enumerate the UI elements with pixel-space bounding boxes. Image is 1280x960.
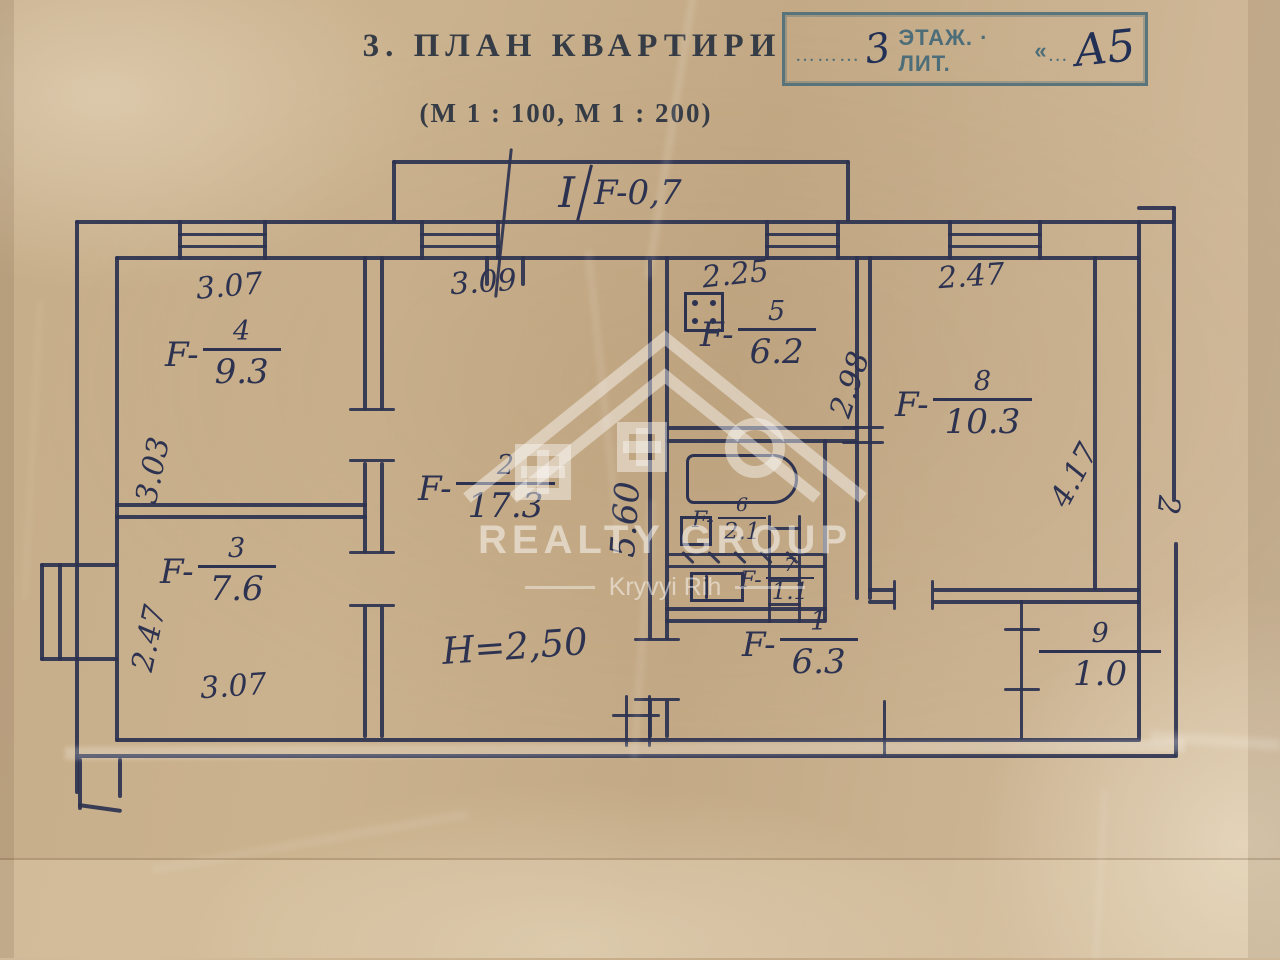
wall-segment: [933, 588, 1140, 592]
window-kitchen: [765, 245, 840, 248]
wall-segment: [1137, 206, 1176, 210]
dimension-kitchen-top: 2.25: [701, 257, 771, 294]
window-room2: [420, 220, 424, 260]
entry-door-jamb: [883, 700, 886, 756]
window-room8: [948, 233, 1042, 236]
wall-segment: [665, 700, 669, 738]
door-jamb: [893, 580, 896, 610]
window-room4: [178, 220, 182, 260]
room-3-label: F- 3 7.6: [160, 535, 276, 606]
window-room3: [40, 657, 118, 661]
room-2-area: 17.3: [456, 482, 556, 523]
room-1-area: 6.3: [780, 638, 858, 679]
door-jamb: [625, 695, 628, 747]
wall-segment: [846, 160, 850, 222]
room-2-prefix: F-: [418, 452, 452, 506]
vent-shaft: [768, 527, 801, 530]
window-room3: [40, 563, 118, 567]
dimension-room2-top: 3.09: [449, 266, 518, 301]
room-4-label: F- 4 9.3: [165, 318, 281, 389]
wall-segment: [665, 426, 857, 430]
wall-segment: [380, 462, 384, 553]
dimension-room3-bottom: 3.07: [199, 670, 268, 705]
toilet-icon: [690, 572, 744, 602]
stamp-label: ЭТАЖ. · ЛИТ.: [898, 25, 1028, 77]
room-8-number: 8: [974, 368, 991, 395]
room-8-label: F- 8 10.3: [895, 368, 1032, 439]
room-7-label: F- 7 1.1: [740, 556, 814, 604]
door-jamb: [648, 695, 651, 747]
wall-segment: [78, 803, 122, 813]
wall-segment: [115, 515, 367, 519]
stamp-dotted-line-2: …: [1048, 45, 1070, 65]
room-8-area: 10.3: [933, 398, 1033, 439]
window-room2: [420, 233, 500, 236]
room-9-label: 9 1.0: [1035, 620, 1161, 691]
stamp-box: ……… 3 ЭТАЖ. · ЛИТ. « … А5: [782, 12, 1148, 86]
room-2-number: 2: [497, 452, 514, 479]
window-room8: [948, 245, 1042, 248]
door-jamb: [349, 459, 395, 462]
door-jamb: [349, 551, 395, 554]
room-8-prefix: F-: [895, 368, 929, 422]
wall-segment: [75, 754, 1176, 758]
room-4-area: 9.3: [203, 348, 281, 389]
room-7-prefix: F-: [740, 556, 762, 592]
room-6-label: F- 6 2.1: [692, 496, 766, 544]
stamp-quote: «: [1034, 38, 1047, 64]
wall-segment: [115, 738, 1141, 742]
page-title: 3. ПЛАН КВАРТИРИ: [352, 28, 792, 65]
room-9-area: 1.0: [1039, 650, 1161, 691]
balcony-label: I F-0,7: [440, 164, 800, 222]
room-5-prefix: F-: [700, 298, 734, 352]
window-kitchen: [765, 233, 840, 236]
wall-segment: [823, 439, 827, 621]
wall-segment: [933, 600, 1140, 604]
window-room3: [40, 563, 44, 661]
dimension-room2-right: 5.60: [606, 480, 645, 558]
edge-mark: 2: [1152, 494, 1184, 516]
room-1-number: 1: [810, 608, 827, 635]
room-4-prefix: F-: [165, 318, 199, 372]
wall-segment: [1172, 206, 1176, 502]
wall-segment: [648, 256, 652, 640]
window-room2: [420, 245, 500, 248]
door-jamb: [349, 408, 395, 411]
wall-segment: [380, 606, 384, 738]
wall-segment: [380, 256, 384, 410]
wall-segment: [868, 588, 895, 592]
balcony-door-jamb: [521, 256, 525, 286]
dimension-room4-left: 3.03: [132, 435, 175, 507]
room-7-number: 7: [784, 556, 796, 575]
dimension-room3-left: 2.47: [128, 603, 171, 675]
wall-segment: [115, 256, 119, 742]
door-jamb: [842, 441, 884, 444]
room-3-number: 3: [228, 535, 245, 562]
wall-segment: [868, 600, 895, 604]
window-room3: [58, 563, 62, 661]
window-room8: [948, 220, 952, 260]
room-5-number: 5: [768, 298, 785, 325]
door-jamb: [931, 580, 934, 610]
room-7-area: 1.1: [766, 577, 815, 604]
room-4-number: 4: [233, 318, 250, 345]
wall-segment: [75, 220, 79, 794]
room-6-prefix: F-: [692, 496, 714, 532]
door-jamb: [612, 714, 660, 717]
room-3-area: 7.6: [198, 565, 276, 606]
wall-segment: [1020, 600, 1023, 740]
wall-segment: [665, 256, 669, 640]
wall-segment: [363, 606, 367, 738]
window-room4: [263, 220, 267, 260]
wall-segment: [392, 160, 396, 222]
room-5-area: 6.2: [738, 328, 816, 369]
room-1-prefix: F-: [742, 608, 776, 662]
room-2-label: F- 2 17.3: [418, 452, 555, 523]
window-room2: [496, 220, 500, 260]
stamp-lit-value: А5: [1072, 24, 1138, 74]
scale-note: (М 1 : 100, М 1 : 200): [408, 98, 724, 129]
window-kitchen: [836, 220, 840, 260]
wall-segment: [1174, 542, 1178, 758]
stamp-dotted-line: ………: [795, 45, 861, 65]
room-1-label: F- 1 6.3: [742, 608, 858, 679]
wall-segment: [363, 462, 367, 553]
wall-segment: [118, 758, 122, 798]
door-jamb: [842, 426, 884, 429]
wall-segment: [665, 439, 857, 443]
wall-segment: [363, 256, 367, 410]
dimension-room4-top: 3.07: [195, 269, 264, 305]
room-6-number: 6: [736, 496, 748, 515]
dimension-room8-top: 2.47: [937, 260, 1006, 295]
wall-segment: [1093, 256, 1097, 590]
window-room4: [178, 245, 267, 248]
door-jamb: [634, 638, 680, 641]
room-3-prefix: F-: [160, 535, 194, 589]
balcony-roman: I: [558, 172, 575, 214]
room-9-number: 9: [1091, 620, 1108, 647]
stamp-floor-value: 3: [862, 27, 893, 70]
balcony-slash: [576, 164, 593, 221]
room-5-label: F- 5 6.2: [700, 298, 816, 369]
balcony-area: F-0,7: [594, 176, 682, 210]
apartment-plan: I F-0,7 F- 4 9.3 F- 3 7.6 F- 2 17.3 F- 5…: [0, 0, 1280, 958]
height-note: Н=2,50: [441, 623, 589, 670]
door-jamb: [349, 604, 395, 607]
door-jamb: [634, 698, 680, 701]
window-room4: [178, 233, 267, 236]
room-6-area: 2.1: [718, 517, 767, 544]
scanned-floor-plan-page: { "title": "3. ПЛАН КВАРТИРИ", "scale_no…: [0, 0, 1280, 958]
window-room8: [1038, 220, 1042, 260]
